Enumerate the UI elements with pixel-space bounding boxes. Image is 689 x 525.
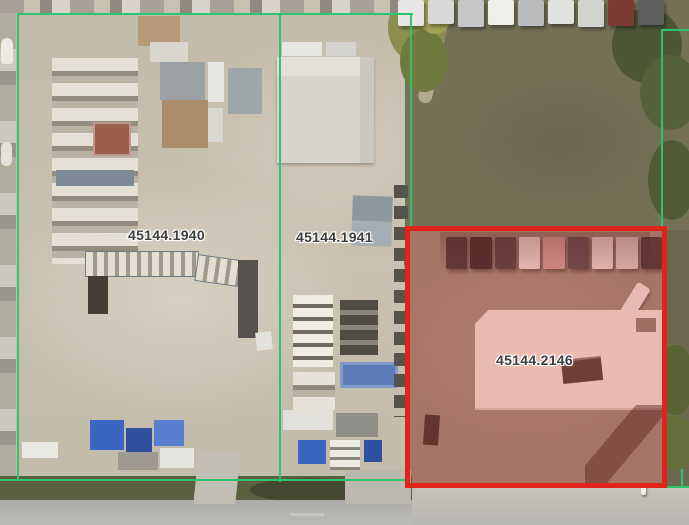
pallet-stack-blue	[340, 362, 398, 388]
vehicle	[548, 0, 574, 24]
pallet-stack	[160, 448, 194, 468]
building	[150, 42, 188, 62]
trailer	[238, 260, 258, 338]
driveway	[345, 470, 411, 504]
truck	[283, 410, 333, 430]
parcel-boundary-line	[0, 479, 410, 481]
vehicle	[578, 0, 604, 27]
vehicle-row-top	[398, 0, 664, 28]
container	[88, 276, 108, 314]
vehicle	[458, 0, 484, 27]
pallet-stack	[330, 440, 360, 470]
yard-clutter-left	[0, 13, 16, 478]
tree	[648, 140, 689, 220]
pallet-stack-blue	[90, 420, 124, 450]
yard-clutter-top	[0, 0, 398, 13]
container-blue	[364, 440, 382, 462]
parcel-boundary-line	[661, 29, 689, 31]
vehicle	[518, 0, 544, 26]
trailer	[208, 108, 223, 142]
trailer	[336, 413, 378, 437]
material-stack	[56, 170, 134, 186]
parcel-label: 45144.2146	[496, 352, 573, 368]
parcel-boundary-line	[410, 13, 412, 231]
parcel-boundary-line	[661, 29, 663, 229]
building	[160, 62, 205, 100]
shed	[93, 122, 131, 156]
material-stacks	[52, 58, 138, 264]
truck-cab	[255, 331, 273, 351]
pallet-stack	[118, 452, 158, 470]
parcel-boundary-line	[681, 469, 683, 488]
aerial-map[interactable]: 45144.1940 45144.1941 45144.2146	[0, 0, 689, 525]
vehicle	[428, 0, 454, 24]
vehicle	[608, 0, 634, 26]
material-stacks	[340, 300, 378, 355]
building	[228, 68, 262, 114]
trailer	[282, 42, 322, 56]
tree	[400, 30, 448, 92]
lane-marking	[290, 513, 324, 516]
road-right	[412, 487, 689, 525]
trailer	[326, 42, 356, 56]
warehouse	[277, 57, 374, 163]
parcel-boundary-line	[279, 13, 281, 482]
parcel-boundary-line	[17, 13, 413, 15]
trailer	[22, 442, 58, 458]
material-stacks	[293, 372, 335, 410]
vehicle	[638, 0, 664, 25]
material-stacks	[293, 295, 333, 367]
steel-stack	[85, 251, 199, 277]
parcel-boundary-line	[666, 486, 689, 488]
steel-stack	[194, 254, 241, 287]
vehicle	[488, 0, 514, 25]
boat	[1, 38, 13, 64]
boat	[1, 142, 12, 166]
parcel-boundary-line	[17, 13, 19, 480]
pallet-stack-blue	[154, 420, 184, 446]
building	[162, 100, 208, 148]
parcel-label: 45144.1940	[128, 227, 205, 243]
parcel-label: 45144.1941	[296, 229, 373, 245]
container-blue	[298, 440, 326, 464]
trailer	[208, 62, 224, 102]
driveway	[193, 452, 240, 504]
